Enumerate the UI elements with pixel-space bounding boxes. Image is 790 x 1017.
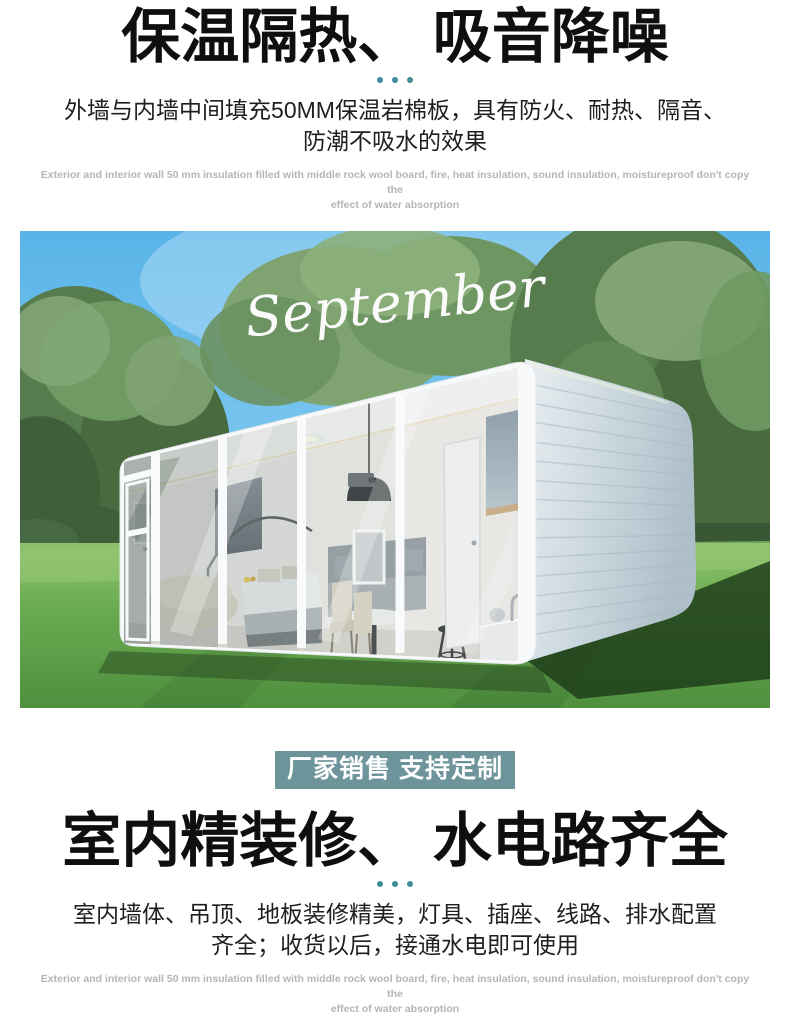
- dot-icon: [407, 881, 413, 887]
- caption-line: effect of water absorption: [33, 198, 757, 213]
- divider-dots-icon: [0, 881, 790, 887]
- subtitle-line: 防潮不吸水的效果: [0, 126, 790, 157]
- dot-icon: [392, 77, 398, 83]
- caption-line: effect of water absorption: [33, 1002, 757, 1017]
- subtitle-line: 齐全；收货以后，接通水电即可使用: [0, 930, 790, 961]
- subtitle-line: 外墙与内墙中间填充50MM保温岩棉板，具有防火、耐热、隔音、: [0, 95, 790, 126]
- hero-photo: September: [20, 231, 770, 708]
- section-top-subtitle: 外墙与内墙中间填充50MM保温岩棉板，具有防火、耐热、隔音、 防潮不吸水的效果: [0, 95, 790, 157]
- dot-icon: [377, 881, 383, 887]
- product-detail-page: 保温隔热、 吸音降噪 外墙与内墙中间填充50MM保温岩棉板，具有防火、耐热、隔音…: [0, 0, 790, 1017]
- caption-line: Exterior and interior wall 50 mm insulat…: [33, 168, 757, 198]
- divider-dots-icon: [0, 77, 790, 83]
- dot-icon: [392, 881, 398, 887]
- dot-icon: [377, 77, 383, 83]
- section-top-heading: 保温隔热、 吸音降噪: [0, 0, 790, 70]
- subtitle-line: 室内墙体、吊顶、地板装修精美，灯具、插座、线路、排水配置: [0, 899, 790, 930]
- section-bottom-subtitle: 室内墙体、吊顶、地板装修精美，灯具、插座、线路、排水配置 齐全；收货以后，接通水…: [0, 899, 790, 961]
- cabin-side-wall: [525, 359, 696, 662]
- factory-sales-badge: 厂家销售 支持定制: [275, 751, 515, 789]
- dot-icon: [407, 77, 413, 83]
- hero-photo-scene: September: [20, 231, 770, 708]
- section-bottom-heading: 室内精装修、 水电路齐全: [0, 804, 790, 874]
- caption-line: Exterior and interior wall 50 mm insulat…: [33, 972, 757, 1002]
- section-bottom-caption-en: Exterior and interior wall 50 mm insulat…: [33, 972, 757, 1017]
- section-top-caption-en: Exterior and interior wall 50 mm insulat…: [33, 168, 757, 213]
